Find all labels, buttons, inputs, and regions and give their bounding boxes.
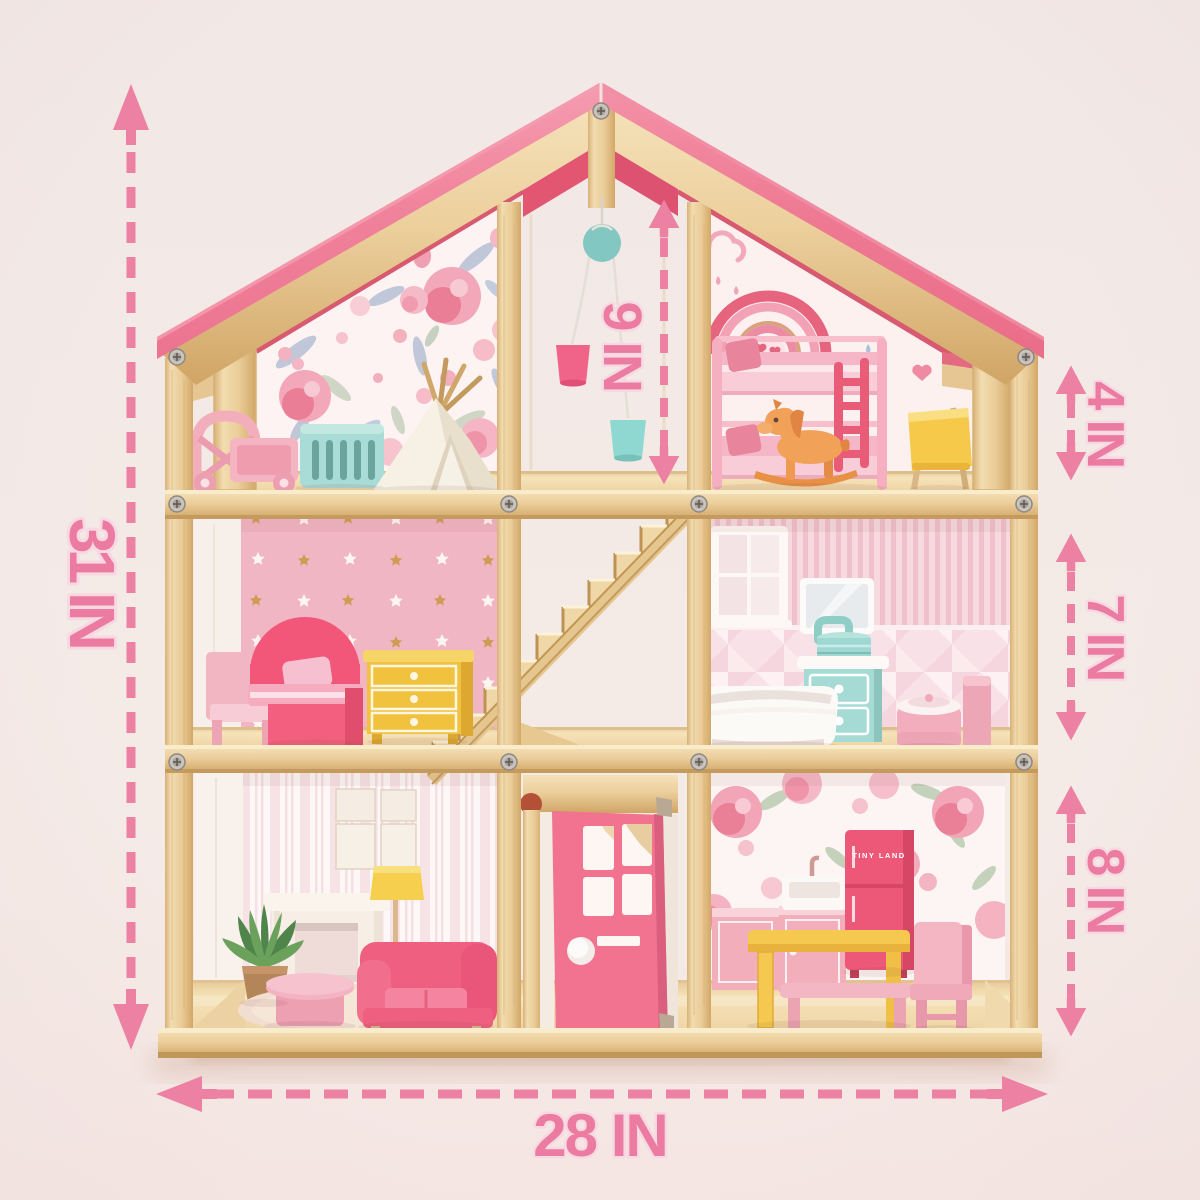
svg-text:8 IN: 8 IN — [1076, 847, 1134, 932]
svg-text:9 IN: 9 IN — [592, 301, 652, 390]
svg-text:7 IN: 7 IN — [1076, 594, 1134, 679]
svg-text:TINY LAND: TINY LAND — [852, 851, 905, 860]
svg-text:31 IN: 31 IN — [56, 518, 128, 647]
svg-text:28 IN: 28 IN — [533, 1102, 666, 1169]
svg-text:4 IN: 4 IN — [1076, 381, 1134, 466]
